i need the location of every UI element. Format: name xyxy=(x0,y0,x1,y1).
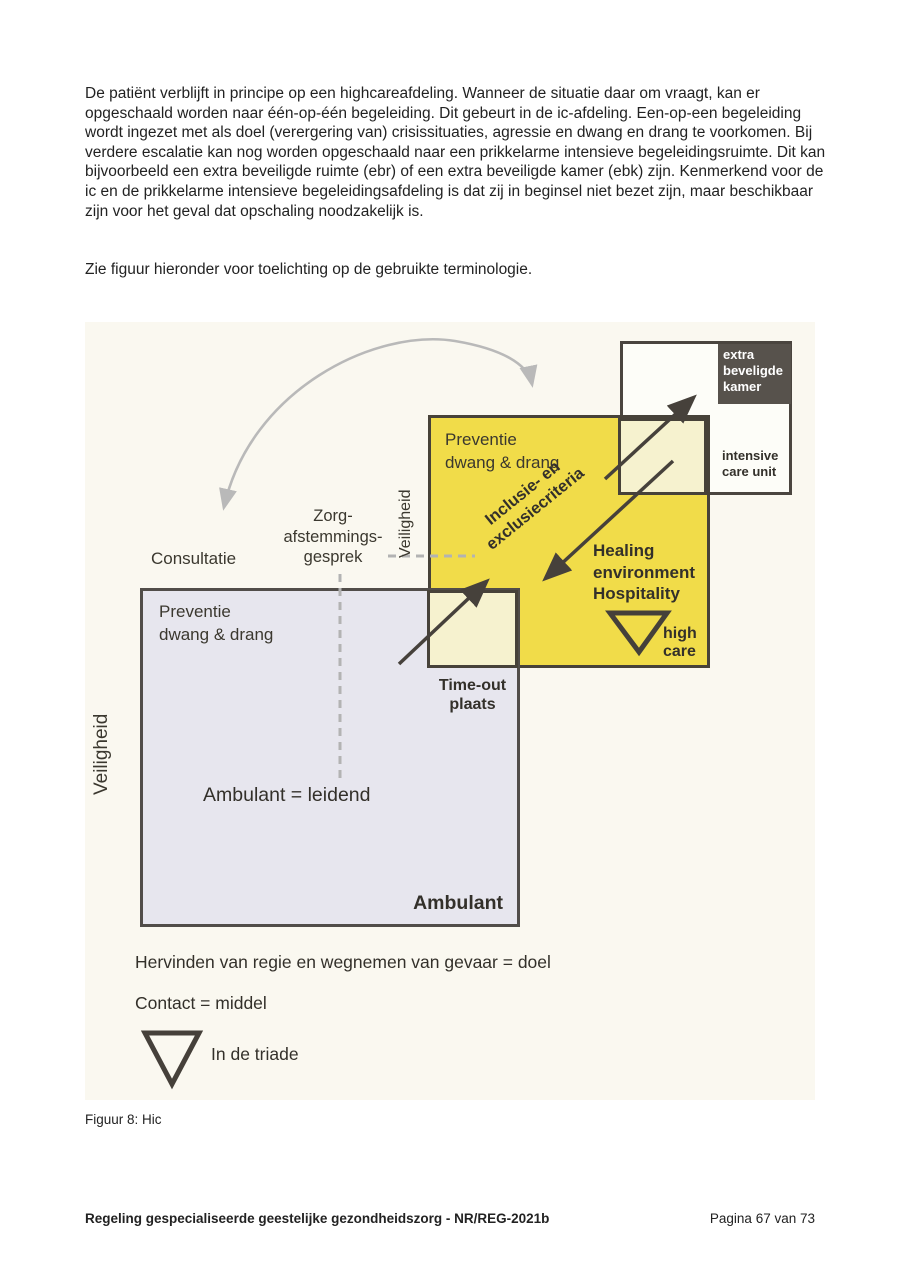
veiligheid-ambulant-label: Veiligheid xyxy=(91,615,113,795)
time-out-plaats-label: Time-out plaats xyxy=(420,676,525,714)
consultatie-label: Consultatie xyxy=(151,549,236,569)
ambulant-leidend-label: Ambulant = leidend xyxy=(203,784,371,807)
ambulant-label: Ambulant xyxy=(385,892,503,915)
intensive-care-unit-label: intensive care unit xyxy=(722,448,778,479)
footer-document-title: Regeling gespecialiseerde geestelijke ge… xyxy=(85,1211,549,1226)
figure-caption: Figuur 8: Hic xyxy=(85,1112,162,1127)
ic-overlap-box xyxy=(618,418,707,495)
figure-8-diagram: extra beveligde kamer intensive care uni… xyxy=(85,322,815,1100)
healing-environment-label: Healing environment Hospitality xyxy=(593,540,695,605)
hervinden-doel-label: Hervinden van regie en wegnemen van geva… xyxy=(135,952,551,973)
high-care-label: high care xyxy=(663,625,697,660)
zorgafstemmingsgesprek-label: Zorg- afstemmings- gesprek xyxy=(273,506,393,568)
in-de-triade-label: In de triade xyxy=(211,1044,299,1065)
contact-middel-label: Contact = middel xyxy=(135,993,267,1014)
preventie-ambulant-label: Preventie dwang & drang xyxy=(159,600,273,646)
time-out-box xyxy=(427,590,518,668)
extra-beveligde-kamer-box: extra beveligde kamer xyxy=(718,344,791,404)
figure-intro-text: Zie figuur hieronder voor toelichting op… xyxy=(85,261,785,279)
body-paragraph: De patiënt verblijft in principe op een … xyxy=(85,84,829,221)
triade-legend-triangle-icon xyxy=(145,1033,199,1084)
veiligheid-highcare-label: Veiligheid xyxy=(397,438,415,558)
footer-page-number: Pagina 67 van 73 xyxy=(710,1211,815,1226)
